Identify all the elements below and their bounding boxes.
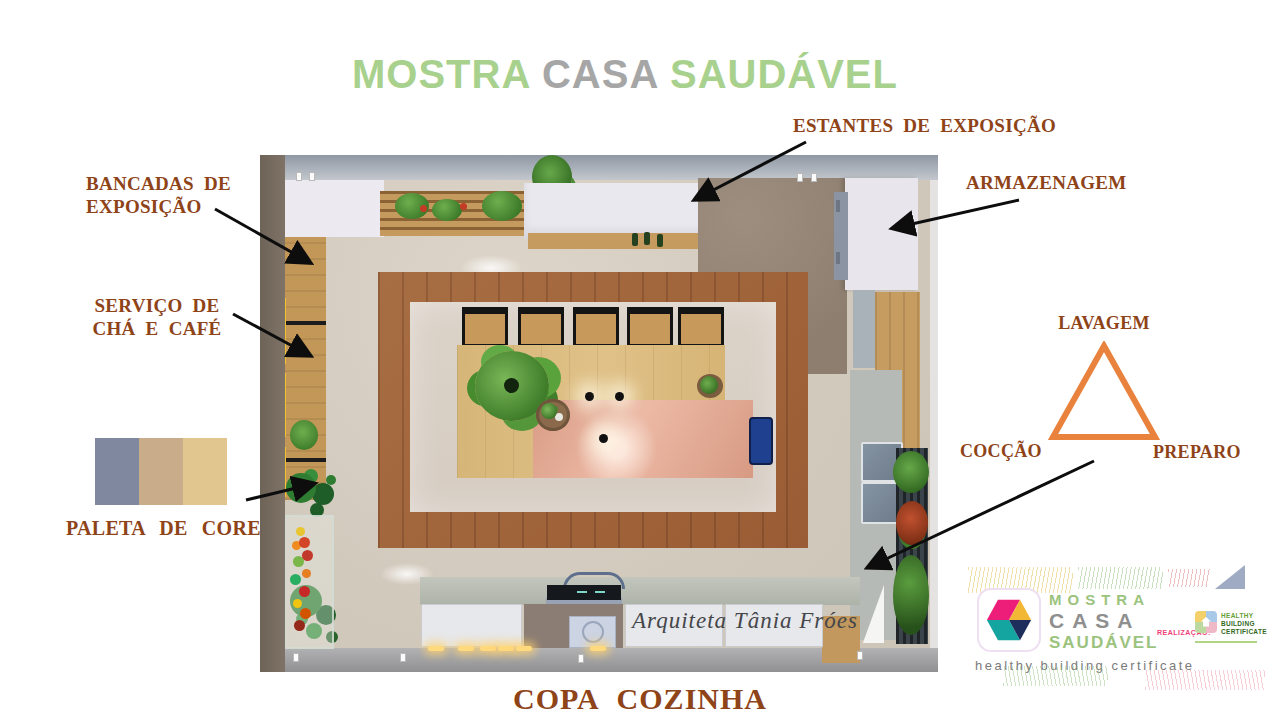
small-plant-icon	[697, 374, 723, 398]
hbc-tagline-bar	[1195, 641, 1257, 643]
exhibition-counter-top-left	[282, 180, 384, 237]
blue-chair	[749, 417, 773, 465]
decorative-triangle-icon	[1215, 565, 1245, 589]
logo-word-casa: CASA	[1049, 609, 1141, 633]
label-preparo: PREPARO	[1153, 441, 1241, 464]
hexagon-logo-frame	[977, 588, 1041, 652]
counter-divider	[286, 321, 326, 325]
hbc-word-building: BUILDING	[1221, 620, 1255, 627]
color-swatch-1	[95, 438, 139, 505]
decorative-stripes-icon	[1078, 567, 1163, 589]
shelf-wood-edge	[528, 233, 706, 249]
chair	[573, 307, 619, 347]
plant-icon	[286, 473, 316, 503]
hbc-word-certificate: CERTIFICATE	[1221, 628, 1267, 635]
label-lavagem: LAVAGEM	[1048, 312, 1160, 335]
label-armazenagem: ARMAZENAGEM	[966, 171, 1127, 194]
under-cabinet-light	[590, 646, 606, 651]
plant-icon	[482, 191, 522, 221]
color-swatch-3	[183, 438, 227, 505]
work-triangle-icon	[1048, 341, 1160, 443]
plant-icon	[432, 199, 462, 221]
color-swatch-2	[139, 438, 183, 505]
plant-icon	[893, 451, 929, 493]
plant-icon	[290, 420, 318, 450]
label-bancadas-de-exposicao: BANCADAS DE EXPOSIÇÃO	[86, 172, 231, 218]
outlet-mark	[797, 173, 803, 182]
flower-icon	[420, 205, 427, 212]
counter-bottom	[420, 577, 860, 605]
under-cabinet-light	[428, 646, 444, 651]
label-servico-line1: SERVIÇO DE	[92, 294, 222, 317]
hexagon-logo-icon	[986, 598, 1032, 642]
label-servico-line2: CHÁ E CAFÉ	[92, 317, 222, 340]
bottle-icon	[644, 232, 650, 245]
outlet-mark	[578, 654, 584, 663]
under-cabinet-light	[480, 646, 496, 651]
outlet-mark	[857, 651, 863, 660]
outlet-mark	[309, 172, 315, 181]
logo-word-saudavel: SAUDÁVEL	[1049, 633, 1159, 653]
flower-icon	[460, 203, 467, 210]
counter-divider	[286, 458, 326, 462]
appliance-column	[834, 192, 848, 280]
label-estantes-de-exposicao: ESTANTES DE EXPOSIÇÃO	[793, 114, 1056, 137]
healthy-building-certificate-icon	[1195, 611, 1217, 633]
hbc-word-healthy: HEALTHY	[1221, 612, 1253, 619]
chair	[462, 307, 508, 347]
title-word-saudavel: SAUDÁVEL	[670, 52, 898, 96]
outlet-mark	[293, 653, 299, 662]
storage-cabinet	[845, 178, 918, 290]
plant-icon	[893, 555, 929, 635]
chair	[518, 307, 564, 347]
wall-left	[260, 155, 285, 672]
mostra-casa-saudavel-logo: MOSTRA CASA SAUDÁVEL healthy building ce…	[963, 563, 1275, 691]
outlet-mark	[811, 173, 817, 182]
chair	[627, 307, 673, 347]
outlet-mark	[296, 172, 302, 181]
title-word-casa: CASA	[542, 52, 658, 96]
under-cabinet-light	[458, 646, 474, 651]
decorative-stripes-icon	[1145, 670, 1265, 690]
page-title: MOSTRA CASA SAUDÁVEL	[0, 52, 1250, 97]
cabinet-front	[421, 604, 522, 647]
label-servico-cha-cafe: SERVIÇO DE CHÁ E CAFÉ	[92, 294, 222, 340]
bottle-icon	[657, 234, 663, 247]
architect-watermark: Arquiteta Tânia Fróes	[618, 608, 872, 634]
outlet-mark	[400, 653, 406, 662]
label-bancadas-line1: BANCADAS DE	[86, 172, 231, 195]
logo-word-mostra: MOSTRA	[1049, 591, 1150, 608]
small-table	[569, 616, 616, 648]
decorative-stripes-icon	[1168, 569, 1210, 587]
label-bancadas-line2: EXPOSIÇÃO	[86, 195, 231, 218]
wall-right	[930, 180, 938, 648]
cooktop	[547, 585, 621, 600]
plant-bowl-icon	[536, 399, 570, 431]
pendant-light	[599, 434, 608, 443]
wall-top	[260, 155, 938, 180]
pendant-light	[615, 392, 624, 401]
under-cabinet-light	[498, 646, 514, 651]
plant-icon	[896, 501, 928, 545]
fruits-icon	[296, 527, 305, 536]
title-word-mostra: MOSTRA	[352, 52, 530, 96]
exhibition-shelf	[524, 183, 706, 239]
decorative-stripes-icon	[1003, 666, 1108, 686]
label-coccao: COCÇÃO	[960, 440, 1042, 463]
chair	[678, 307, 724, 347]
presentation-slide: MOSTRA CASA SAUDÁVEL ESTANTES DE EXPOSIÇ…	[0, 0, 1280, 720]
label-paleta-de-cores: PALETA DE CORES	[66, 517, 272, 540]
herb-planter	[380, 191, 530, 236]
under-cabinet-light	[516, 646, 532, 651]
pendant-light	[585, 392, 594, 401]
produce-display-case	[284, 515, 334, 649]
counter-right-upper	[853, 290, 875, 368]
kitchen-floorplan-render: Arquiteta Tânia Fróes	[260, 155, 938, 672]
bottle-icon	[632, 233, 638, 246]
